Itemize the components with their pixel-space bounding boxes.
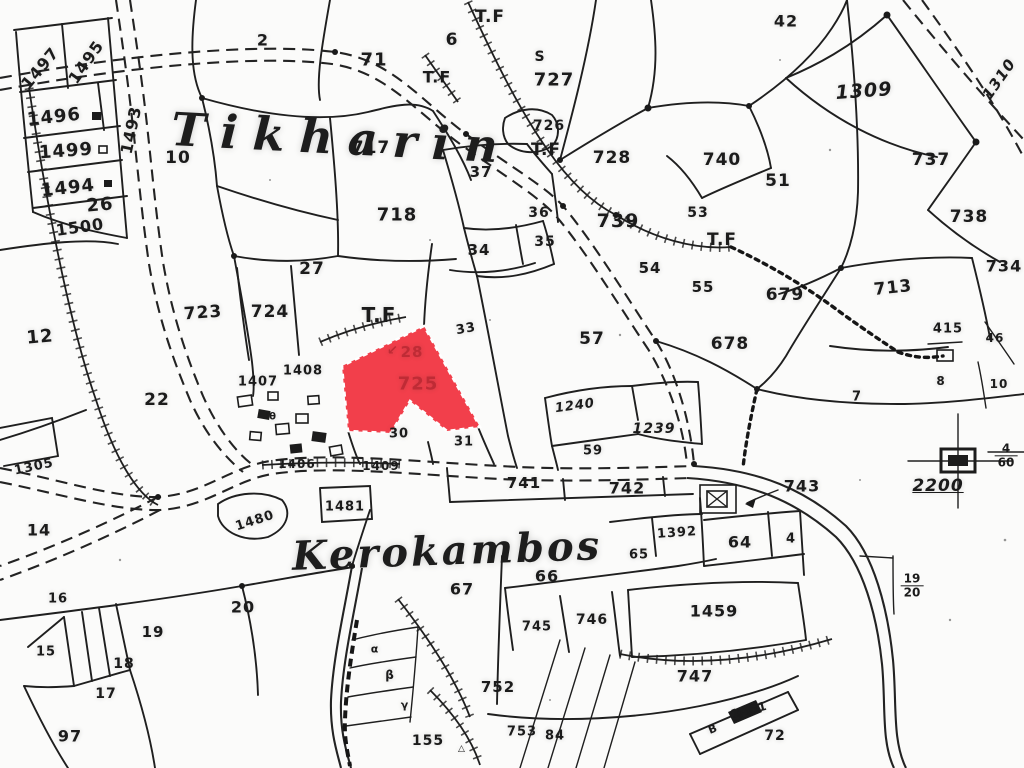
cadastral-map: Tikharin Kerokambos 14971495149614931499… bbox=[0, 0, 1024, 768]
church-symbol bbox=[700, 485, 778, 513]
map-canvas[interactable] bbox=[0, 0, 1024, 768]
village-buildings bbox=[92, 112, 343, 456]
building-1461 bbox=[728, 700, 762, 724]
highlighted-parcel[interactable] bbox=[342, 326, 480, 433]
boundary-lines bbox=[0, 0, 1024, 768]
building-415 bbox=[937, 350, 953, 361]
dashed-roads bbox=[0, 0, 1024, 580]
benchmark-symbol bbox=[908, 414, 1024, 508]
solid-roads bbox=[331, 466, 906, 768]
scan-noise bbox=[119, 59, 1007, 701]
dotted-boundaries bbox=[731, 247, 943, 468]
